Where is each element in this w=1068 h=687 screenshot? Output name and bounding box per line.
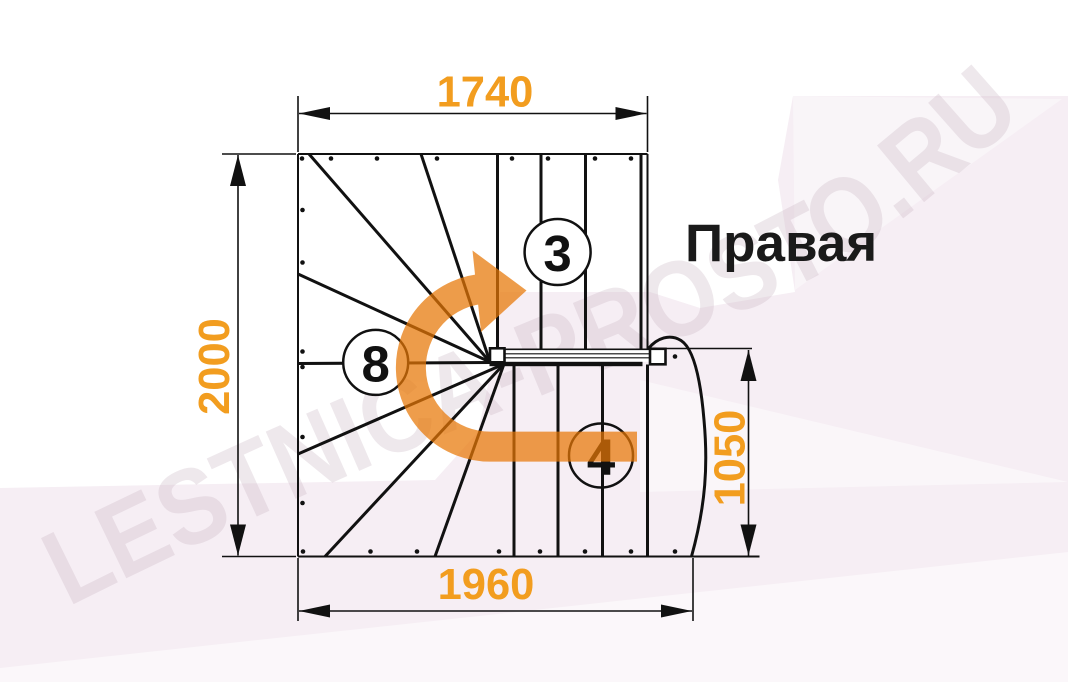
svg-text:3: 3 <box>543 225 571 282</box>
svg-text:1050: 1050 <box>707 410 755 507</box>
svg-text:8: 8 <box>362 335 390 392</box>
svg-text:1740: 1740 <box>437 69 534 117</box>
svg-text:Правая: Правая <box>685 214 877 273</box>
svg-text:2000: 2000 <box>191 318 239 415</box>
svg-text:1960: 1960 <box>438 561 535 609</box>
